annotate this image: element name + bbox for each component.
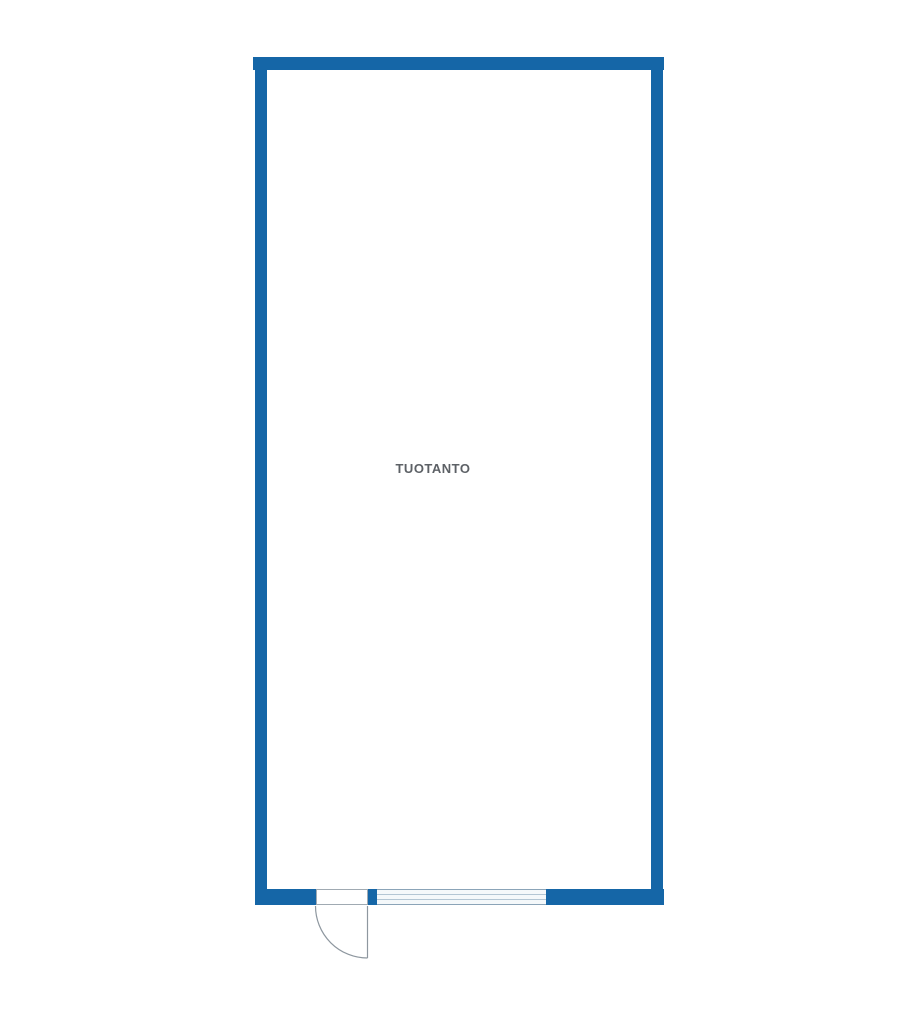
wall-top — [253, 57, 664, 70]
window-pane-line — [377, 899, 546, 900]
wall-left — [255, 57, 267, 905]
window-pane-line — [377, 889, 546, 890]
wall-post — [368, 889, 377, 905]
wall-bottom-left-segment — [255, 889, 316, 905]
window-icon — [377, 889, 546, 905]
wall-right — [651, 57, 663, 905]
window-pane-line — [377, 894, 546, 895]
room-label: TUOTANTO — [370, 461, 496, 476]
door-swing-arc — [316, 906, 368, 958]
door-icon — [310, 904, 372, 964]
floor-plan: TUOTANTO — [0, 0, 904, 1024]
wall-bottom-right-segment — [546, 889, 664, 905]
window-pane-line — [377, 904, 546, 905]
door-opening — [316, 889, 368, 905]
